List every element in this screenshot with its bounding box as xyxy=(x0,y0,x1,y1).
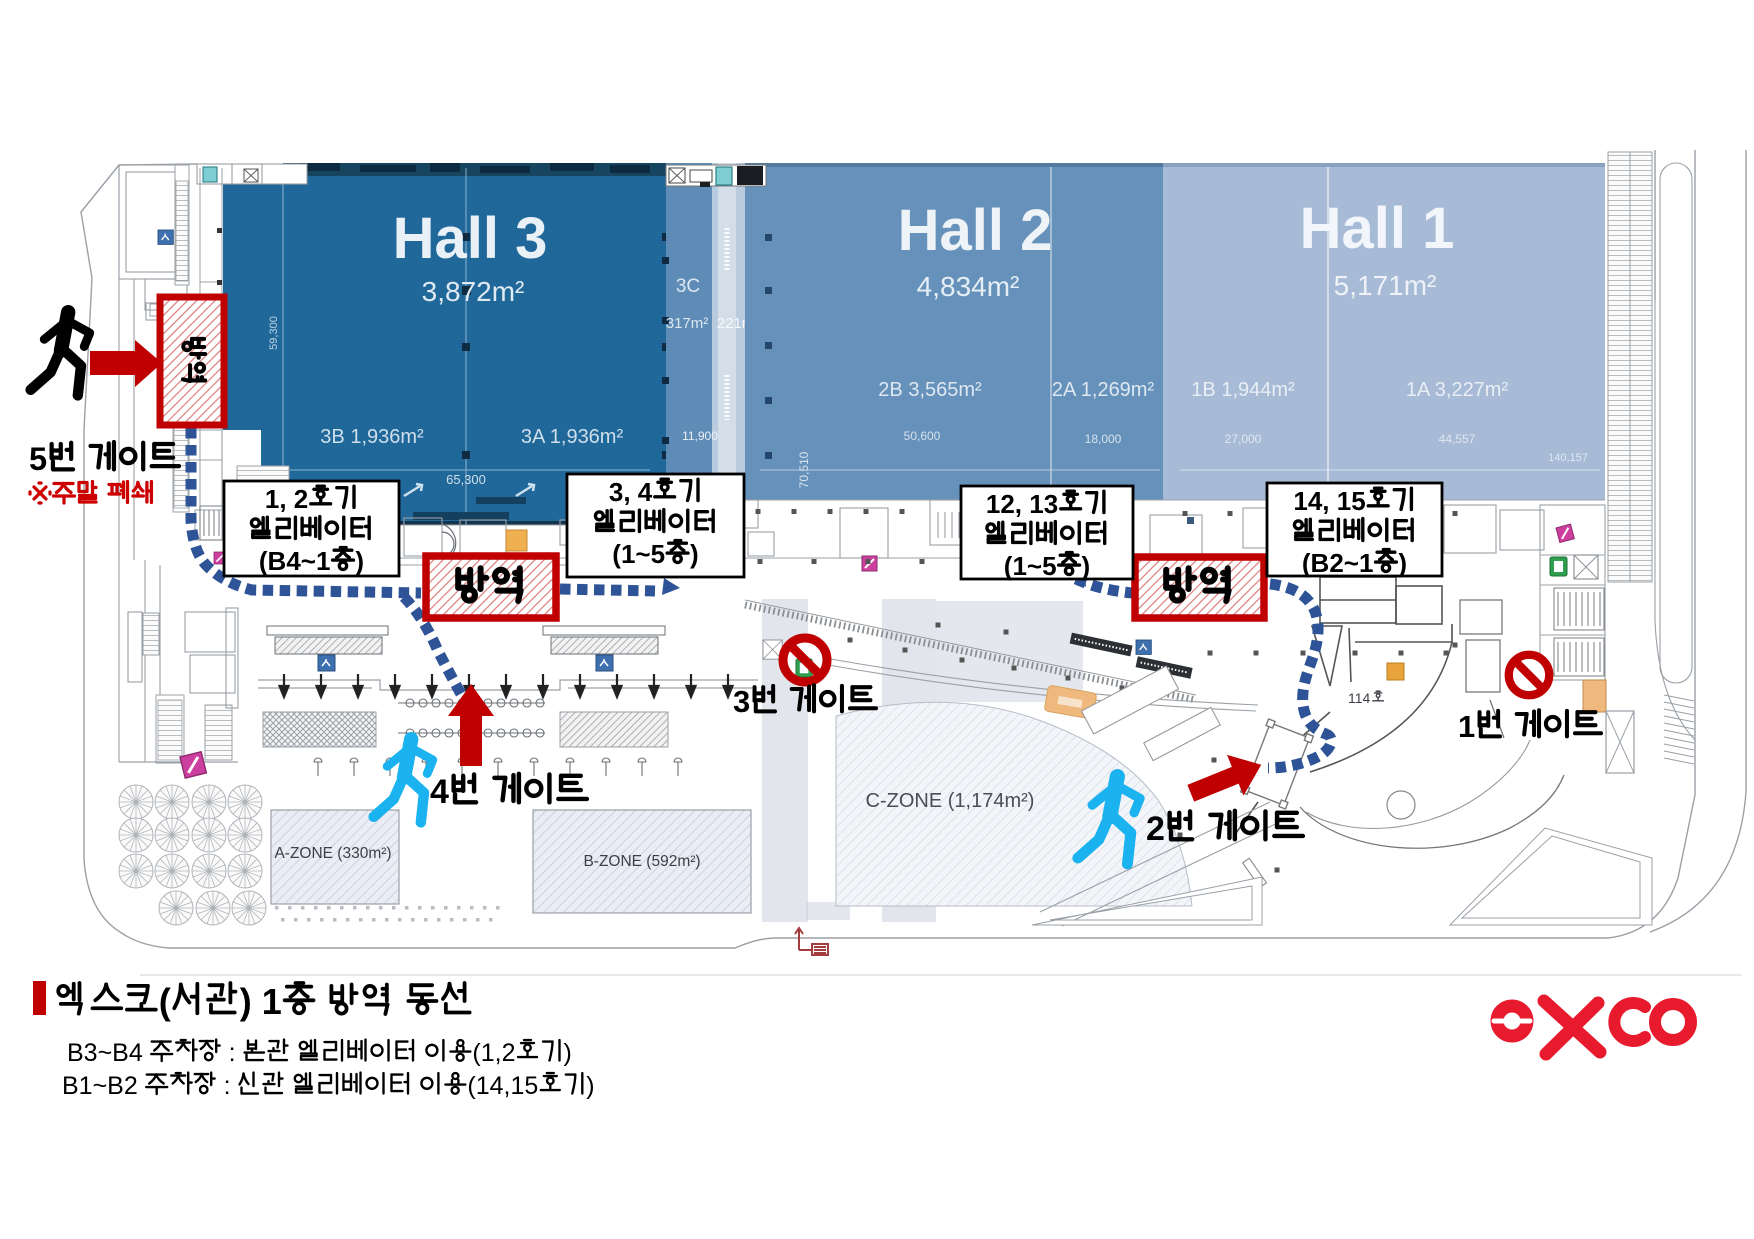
svg-text:Hall 3: Hall 3 xyxy=(393,206,548,271)
svg-text:18,000: 18,000 xyxy=(1085,432,1122,446)
svg-text:3C: 3C xyxy=(676,276,700,297)
svg-text:C-ZONE (1,174m²): C-ZONE (1,174m²) xyxy=(866,790,1035,812)
svg-text:): ) xyxy=(690,539,699,569)
svg-text:1, 2: 1, 2 xyxy=(265,484,308,514)
svg-text::: : xyxy=(217,1072,238,1100)
svg-text:3A 1,936m²: 3A 1,936m² xyxy=(521,426,624,448)
svg-text:50,600: 50,600 xyxy=(904,429,941,443)
svg-text:5: 5 xyxy=(29,441,47,477)
svg-text:1: 1 xyxy=(1458,709,1475,744)
svg-text:(1,2: (1,2 xyxy=(472,1039,515,1067)
svg-text:140,157: 140,157 xyxy=(1548,452,1588,464)
svg-text:): ) xyxy=(586,1072,594,1100)
svg-text:(1~5: (1~5 xyxy=(612,539,665,569)
svg-text:B-ZONE (592m²): B-ZONE (592m²) xyxy=(583,853,700,870)
svg-text:A-ZONE (330m²): A-ZONE (330m²) xyxy=(274,845,391,862)
svg-text:B1~B2: B1~B2 xyxy=(62,1072,145,1100)
svg-text:): ) xyxy=(355,546,364,576)
svg-text:2: 2 xyxy=(1146,810,1165,848)
svg-text:27,000: 27,000 xyxy=(1225,432,1262,446)
svg-text:14, 15: 14, 15 xyxy=(1293,486,1365,516)
svg-text:5,171m²: 5,171m² xyxy=(1334,270,1437,301)
svg-text:Hall 2: Hall 2 xyxy=(898,198,1053,263)
svg-text:2A 1,269m²: 2A 1,269m² xyxy=(1052,379,1155,401)
svg-text:) 1: ) 1 xyxy=(240,981,282,1022)
svg-text:317m²: 317m² xyxy=(666,315,709,332)
svg-text:59,300: 59,300 xyxy=(268,316,280,350)
svg-text:): ) xyxy=(564,1039,572,1067)
svg-text:(1~5: (1~5 xyxy=(1004,551,1057,581)
svg-text:(14,15: (14,15 xyxy=(467,1072,538,1100)
svg-text:B3~B4: B3~B4 xyxy=(67,1039,150,1067)
svg-text::: : xyxy=(222,1039,243,1067)
svg-text:4,834m²: 4,834m² xyxy=(917,271,1020,302)
svg-text:3,872m²: 3,872m² xyxy=(422,276,525,307)
svg-text:11,900: 11,900 xyxy=(682,429,718,443)
svg-text:2B 3,565m²: 2B 3,565m² xyxy=(878,379,982,401)
svg-text:(: ( xyxy=(159,981,171,1022)
svg-text:4: 4 xyxy=(430,773,449,811)
svg-text:114: 114 xyxy=(1348,690,1371,706)
svg-text:(B4~1: (B4~1 xyxy=(259,546,331,576)
svg-text:): ) xyxy=(1398,548,1407,578)
svg-text:3B 1,936m²: 3B 1,936m² xyxy=(320,426,424,448)
svg-text:1B 1,944m²: 1B 1,944m² xyxy=(1191,379,1295,401)
svg-text:1A 3,227m²: 1A 3,227m² xyxy=(1406,379,1509,401)
svg-text:Hall 1: Hall 1 xyxy=(1300,196,1455,261)
svg-text:3: 3 xyxy=(733,684,750,719)
svg-text:70,510: 70,510 xyxy=(797,451,811,488)
svg-text:(B2~1: (B2~1 xyxy=(1302,548,1374,578)
svg-text:): ) xyxy=(1082,551,1091,581)
svg-text:12, 13: 12, 13 xyxy=(986,489,1058,519)
svg-text:3, 4: 3, 4 xyxy=(609,477,653,507)
svg-text:44,557: 44,557 xyxy=(1439,432,1476,446)
svg-text:65,300: 65,300 xyxy=(446,472,486,487)
